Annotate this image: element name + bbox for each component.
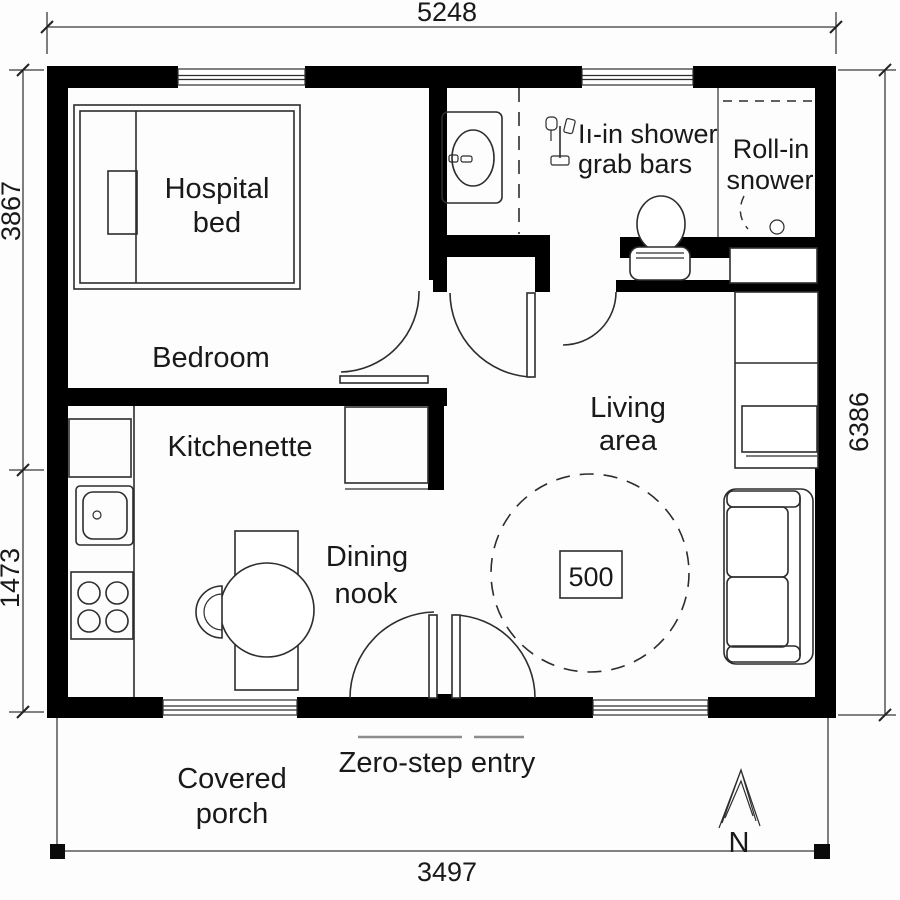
sofa: [724, 489, 813, 664]
floor-plan: Hospital bed Bedroom Kitchenette Dining …: [0, 0, 900, 900]
floor-plan-drawing: Hospital bed Bedroom Kitchenette Dining …: [0, 0, 900, 900]
roll-in-shower-label-line2: snower: [726, 165, 813, 195]
dining-nook-label-line1: Dining: [326, 541, 408, 573]
dining-nook-label-line2: nook: [335, 578, 398, 610]
north-label: N: [729, 827, 750, 859]
living-area-label-line1: Living: [590, 392, 666, 424]
kitchenette-label: Kitchenette: [167, 431, 312, 463]
window-living-south: [593, 697, 708, 718]
living-area-label-line2: area: [599, 425, 658, 457]
porch-corner-marker: [50, 844, 65, 859]
grab-bars-label-line2: grab bars: [578, 149, 692, 179]
dim-height-right: 6386: [844, 392, 874, 452]
dim-porch-width: 3497: [417, 857, 477, 887]
grab-bars-label-line1: Iı-in shower: [578, 119, 718, 149]
dim-height-left-upper: 3867: [0, 181, 26, 241]
window-dining-south: [163, 697, 297, 718]
window-bath-north: [582, 66, 693, 88]
dim-width-top: 5248: [417, 0, 477, 27]
dim-height-left-lower: 1473: [0, 548, 25, 608]
bath-cabinet: [730, 248, 817, 283]
roll-in-shower-label-line1: Roll-in: [733, 134, 810, 164]
porch-corner-marker: [814, 844, 830, 859]
zero-step-entry-label: Zero-step entry: [339, 747, 536, 779]
dining-table: [220, 563, 314, 657]
covered-porch-label-line1: Covered: [177, 763, 287, 795]
hospital-bed-label-line2: bed: [193, 207, 241, 239]
window-bedroom-north: [178, 66, 305, 88]
turning-circle-value: 500: [568, 562, 613, 592]
covered-porch-label-line2: porch: [196, 798, 269, 830]
bedroom-label: Bedroom: [152, 342, 270, 374]
hospital-bed-label-line1: Hospital: [165, 173, 270, 205]
wall-unit: [735, 292, 818, 468]
